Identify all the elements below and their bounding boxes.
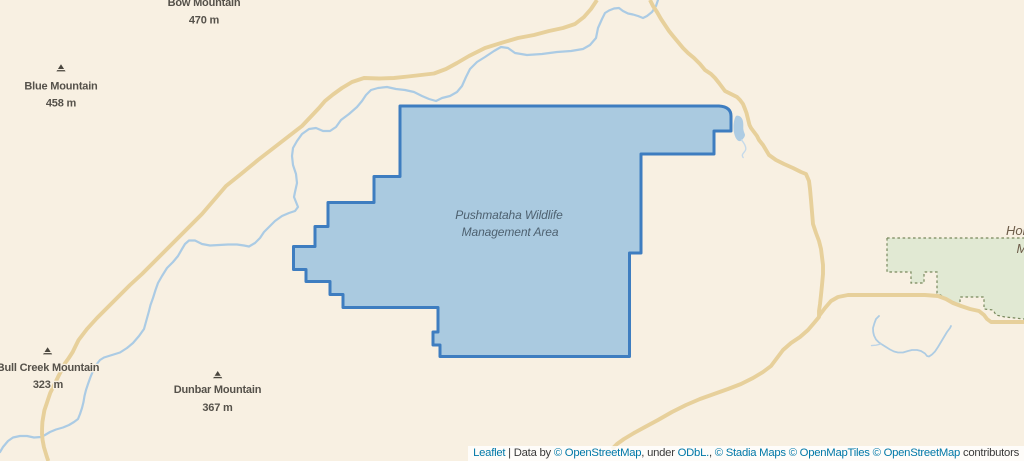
svg-text:Mou: Mou — [1017, 241, 1024, 256]
svg-text:Bow Mountain: Bow Mountain — [168, 0, 241, 9]
svg-text:367 m: 367 m — [202, 402, 233, 414]
svg-text:Management Area: Management Area — [462, 225, 559, 239]
svg-text:458 m: 458 m — [46, 98, 77, 110]
svg-text:Bull Creek Mountain: Bull Creek Mountain — [0, 362, 100, 374]
svg-text:Dunbar Mountain: Dunbar Mountain — [174, 384, 262, 396]
svg-text:Honobia: Honobia — [1006, 223, 1024, 238]
svg-text:323 m: 323 m — [33, 379, 64, 391]
svg-text:Blue Mountain: Blue Mountain — [24, 81, 98, 93]
svg-text:Pushmataha Wildlife: Pushmataha Wildlife — [455, 208, 563, 222]
svg-text:470 m: 470 m — [189, 15, 220, 27]
